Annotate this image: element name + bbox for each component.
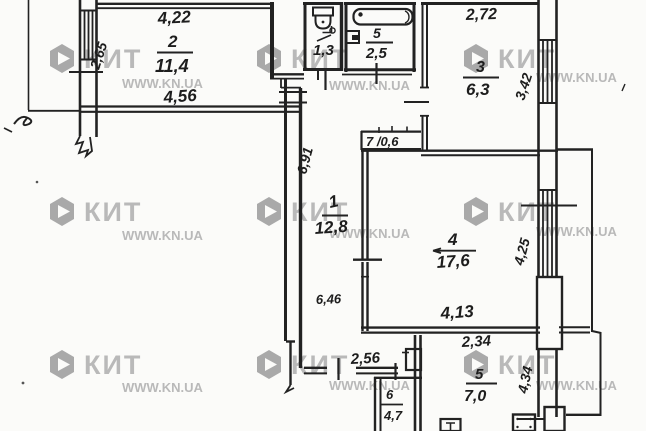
svg-text:4,7: 4,7 (383, 408, 403, 423)
svg-text:4,13: 4,13 (439, 302, 475, 323)
svg-text:2,72: 2,72 (465, 6, 498, 24)
svg-text:WWW.KN.UA: WWW.KN.UA (122, 380, 203, 395)
svg-text:4,56: 4,56 (162, 86, 198, 107)
svg-text:6,3: 6,3 (466, 80, 490, 99)
svg-text:4: 4 (447, 230, 458, 249)
svg-text:КИТ: КИТ (84, 350, 142, 380)
svg-text:4,22: 4,22 (156, 7, 192, 28)
svg-text:6,46: 6,46 (316, 291, 343, 307)
svg-text:2: 2 (167, 32, 178, 51)
svg-text:WWW.KN.UA: WWW.KN.UA (536, 378, 617, 393)
svg-text:12,8: 12,8 (314, 217, 349, 238)
svg-text:КИТ: КИТ (84, 197, 142, 227)
svg-text:6: 6 (386, 387, 394, 402)
svg-text:7,0: 7,0 (464, 388, 486, 405)
svg-text:2,34: 2,34 (460, 332, 492, 351)
svg-text:5: 5 (373, 25, 381, 41)
svg-text:11,4: 11,4 (155, 56, 189, 76)
svg-text:7 /0,6: 7 /0,6 (366, 134, 399, 149)
svg-text:17,6: 17,6 (436, 251, 471, 272)
svg-text:2,5: 2,5 (365, 45, 388, 62)
svg-text:WWW.KN.UA: WWW.KN.UA (329, 378, 410, 393)
svg-text:2,56: 2,56 (349, 349, 381, 368)
svg-text:3: 3 (476, 59, 485, 76)
svg-text:1,3: 1,3 (313, 42, 335, 59)
svg-text:5: 5 (475, 366, 484, 383)
svg-text:WWW.KN.UA: WWW.KN.UA (329, 78, 410, 93)
svg-text:WWW.KN.UA: WWW.KN.UA (122, 228, 203, 243)
